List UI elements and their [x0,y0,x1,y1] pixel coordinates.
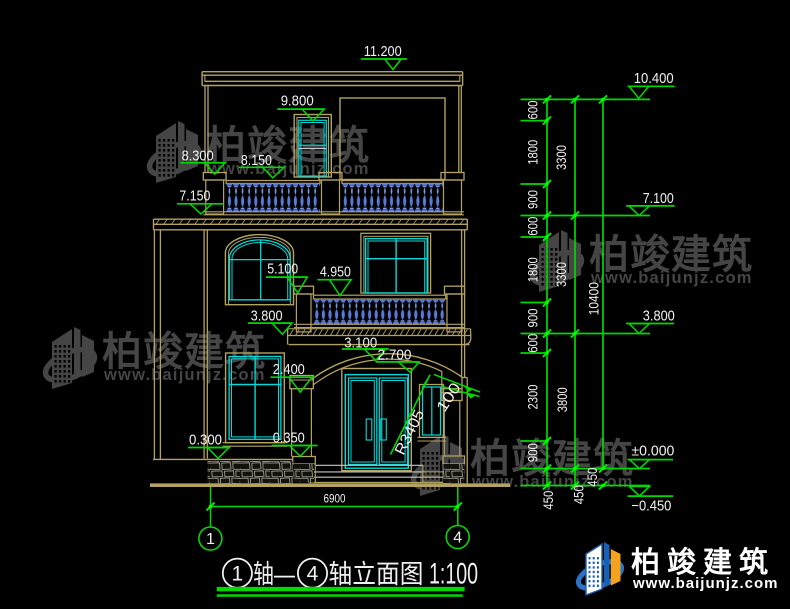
svg-text:4.950: 4.950 [320,264,351,281]
svg-text:3300: 3300 [554,262,569,287]
svg-text:2300: 2300 [526,384,541,409]
svg-text:600: 600 [526,216,541,235]
svg-text:600: 600 [526,100,541,119]
svg-text:1: 1 [232,563,244,586]
svg-text:9.800: 9.800 [281,92,314,109]
svg-text:3300: 3300 [554,145,569,170]
svg-text:900: 900 [526,308,541,327]
svg-text:−0.450: −0.450 [631,498,671,515]
svg-text:3.800: 3.800 [643,308,675,325]
svg-text:450: 450 [585,467,600,486]
svg-text:7.150: 7.150 [179,187,210,204]
svg-text:4: 4 [307,563,319,586]
svg-text:0.350: 0.350 [273,430,305,447]
svg-text:1800: 1800 [526,140,541,165]
svg-text:450: 450 [541,490,556,509]
svg-text:1:100: 1:100 [429,558,478,591]
svg-text:www.baijunjz.com: www.baijunjz.com [632,575,778,592]
svg-text:6900: 6900 [324,492,346,506]
svg-text:900: 900 [526,190,541,209]
svg-text:柏竣建筑: 柏竣建筑 [631,545,775,579]
svg-text:2.400: 2.400 [273,361,305,378]
svg-text:4: 4 [453,530,462,547]
svg-text:3800: 3800 [555,387,570,412]
svg-text:1: 1 [206,531,215,548]
svg-text:0.300: 0.300 [189,432,222,449]
svg-text:11.200: 11.200 [364,43,402,60]
svg-text:900: 900 [526,443,541,462]
svg-text:600: 600 [526,334,541,353]
svg-text:2.700: 2.700 [378,347,412,364]
svg-text:1800: 1800 [526,257,541,282]
svg-text:450: 450 [572,485,587,504]
svg-text:轴—: 轴— [253,559,295,589]
svg-text:10400: 10400 [587,282,602,315]
svg-text:±0.000: ±0.000 [631,443,674,460]
svg-text:10.400: 10.400 [634,70,674,87]
svg-text:轴立面图: 轴立面图 [329,559,424,589]
svg-text:7.100: 7.100 [643,190,674,207]
svg-text:3.800: 3.800 [251,308,283,325]
svg-text:5.100: 5.100 [267,261,298,278]
